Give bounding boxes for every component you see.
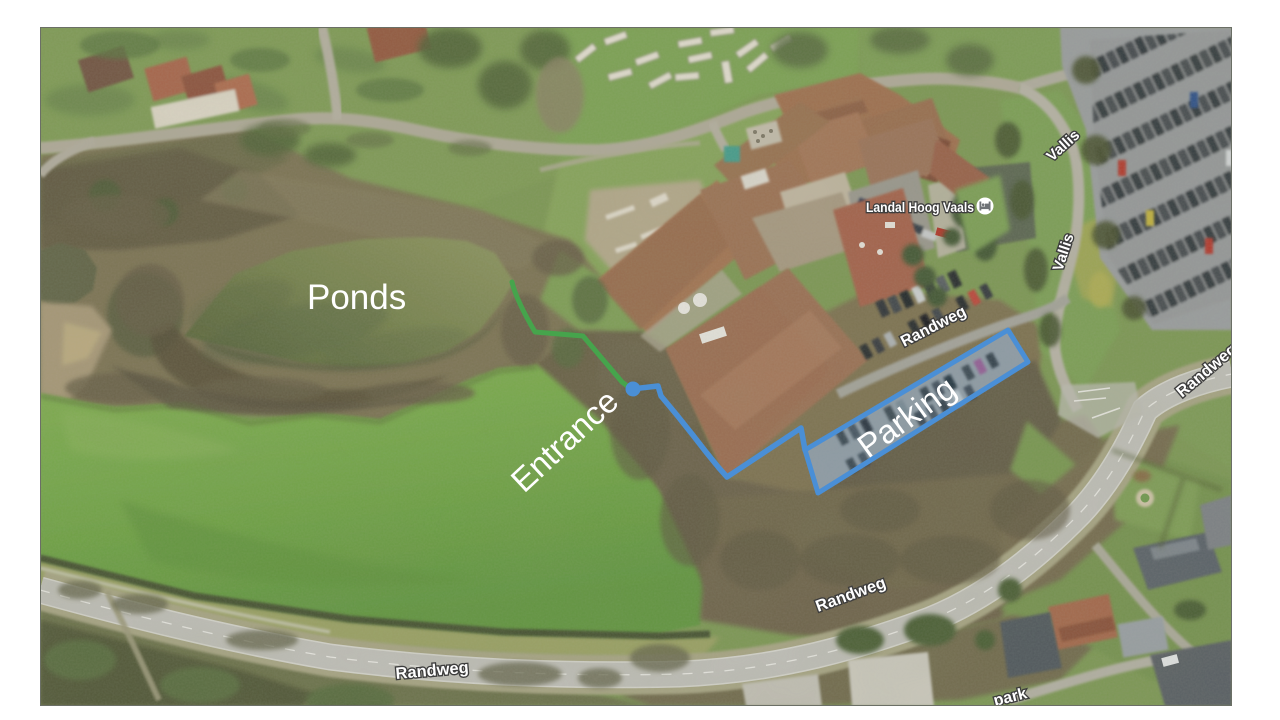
svg-text:Landal Hoog Vaals: Landal Hoog Vaals xyxy=(866,200,974,215)
svg-text:Ponds: Ponds xyxy=(307,278,406,317)
